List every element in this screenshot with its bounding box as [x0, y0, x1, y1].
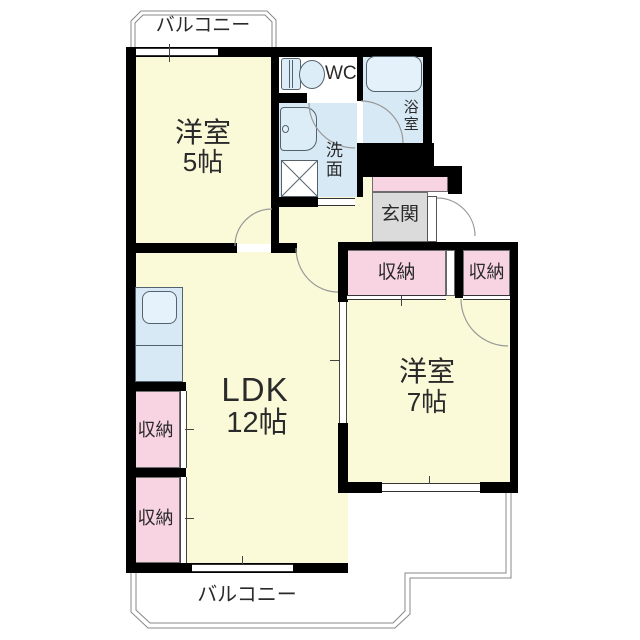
room5-size-label: 5帖: [133, 149, 273, 176]
closet-ldk-upper-label: 収納: [131, 421, 180, 440]
floorplan-canvas: バルコニー 洋室 5帖 WC 浴室 洗面 玄関 収納 収納 LDK 12帖 洋室…: [0, 0, 640, 640]
room5-name-label: 洋室: [133, 118, 273, 147]
closet-ldk-lower-label: 収納: [131, 509, 180, 528]
door-arc-room5: [235, 209, 272, 246]
room7-size-label: 7帖: [357, 389, 497, 416]
bath-label: 浴室: [402, 99, 418, 133]
closet-hall-small-label: 収納: [463, 263, 510, 282]
washroom-label: 洗面: [323, 141, 341, 179]
closet-hall-large-label: 収納: [347, 263, 446, 283]
door-arc-entrance: [437, 198, 475, 236]
balcony-top-label: バルコニー: [133, 16, 273, 36]
room7-name-label: 洋室: [357, 357, 497, 386]
linework-overlay: [0, 0, 640, 640]
door-arc-room7: [461, 299, 508, 346]
ldk-size-label: 12帖: [187, 408, 327, 438]
entrance-label: 玄関: [372, 205, 428, 225]
door-arc-bath: [361, 101, 403, 143]
ldk-name-label: LDK: [185, 373, 325, 408]
wc-label: WC: [325, 64, 357, 84]
balcony-bottom-fence-outer: [131, 493, 511, 628]
door-arc-hall-ldk: [296, 248, 338, 292]
balcony-bottom-label: バルコニー: [177, 585, 317, 606]
